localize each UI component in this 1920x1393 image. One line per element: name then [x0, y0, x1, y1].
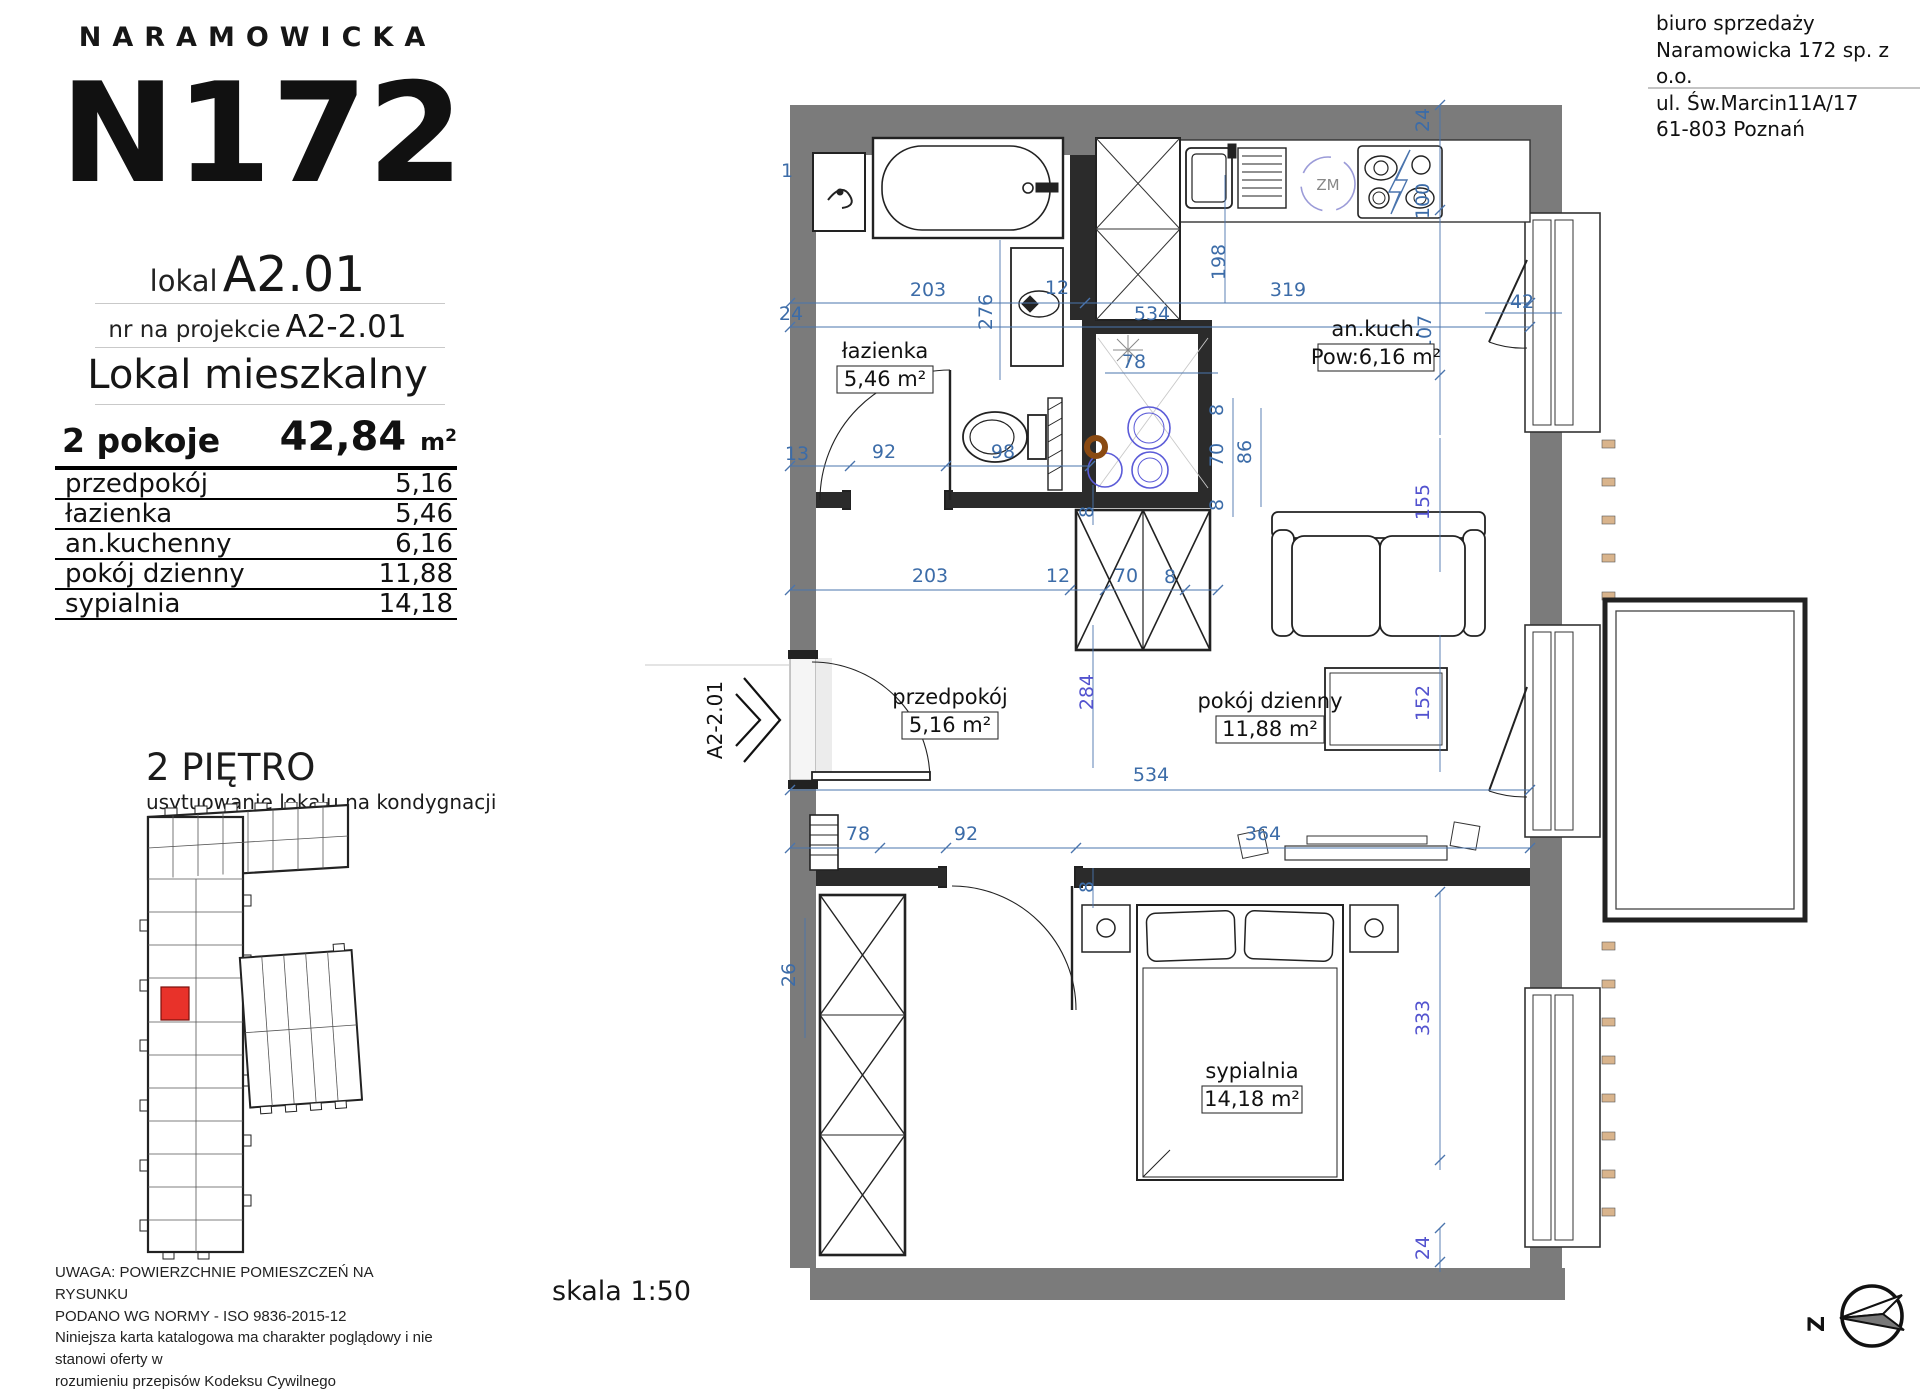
- floor-title: 2 PIĘTRO: [146, 746, 506, 789]
- dim-label: 364: [1245, 823, 1281, 845]
- divider: [95, 303, 445, 304]
- dim-label: 152: [1412, 685, 1434, 721]
- entrance-code: A2-2.01: [703, 681, 727, 759]
- dim-label: 98: [991, 441, 1015, 463]
- dishwasher-symbol: ZM: [1316, 176, 1339, 194]
- unit-value: A2.01: [223, 246, 366, 303]
- legal-line: PODANO WG NORMY - ISO 9836-2015-12: [55, 1306, 447, 1328]
- room-area: 11,88: [379, 559, 457, 589]
- brand-name: NARAMOWICKA: [60, 22, 455, 53]
- dim-label: 100: [1412, 183, 1434, 219]
- dim-label: 333: [1412, 1000, 1434, 1036]
- summary-row: 2 pokoje 42,84 m2: [62, 414, 457, 460]
- room-area: 5,46: [395, 499, 457, 529]
- project-number-line: nr na projekcie A2-2.01: [60, 309, 455, 345]
- hall-wardrobe: [1076, 510, 1210, 650]
- floor-plan: ZM: [640, 80, 1840, 1360]
- dim-label: 70: [1114, 565, 1138, 587]
- washbasin: [1011, 248, 1063, 366]
- room-name: sypialnia: [55, 589, 180, 619]
- room-label: sypialnia: [1205, 1059, 1298, 1083]
- dim-label: 12: [1045, 277, 1069, 299]
- divider: [95, 347, 445, 348]
- dim-label: 92: [872, 441, 896, 463]
- second-building: [239, 943, 362, 1114]
- shoe-cabinet: [810, 815, 838, 870]
- dim-label: 319: [1270, 279, 1306, 301]
- room-name: przedpokój: [55, 469, 208, 499]
- dim-label: 12: [1046, 565, 1070, 587]
- table-row: sypialnia14,18: [55, 590, 457, 620]
- table-row: przedpokój5,16: [55, 470, 457, 500]
- compass-west-label: Z: [1805, 1316, 1830, 1332]
- dim-label: 1: [781, 160, 793, 182]
- bathtub: [873, 138, 1063, 238]
- room-label: an.kuch.: [1331, 317, 1420, 341]
- rooms-count: 2 pokoje: [62, 421, 220, 460]
- room-area-label: Pow:6,16 m²: [1311, 345, 1441, 369]
- project-value: A2-2.01: [285, 309, 406, 345]
- compass: Z: [1780, 1264, 1920, 1358]
- balcony-door-leaf: [1489, 260, 1527, 797]
- dim-label: 534: [1134, 303, 1170, 325]
- room-area-table: przedpokój5,16 łazienka5,46 an.kuchenny6…: [55, 466, 457, 620]
- legal-note: UWAGA: POWIERZCHNIE POMIESZCZEŃ NA RYSUN…: [55, 1262, 447, 1393]
- dim-label: 8: [1206, 499, 1228, 511]
- dim-label: 13: [785, 443, 809, 465]
- room-label: przedpokój: [892, 685, 1008, 709]
- dim-label: 276: [975, 294, 997, 330]
- dim-label: 8: [1076, 506, 1098, 518]
- dim-label: 198: [1208, 244, 1230, 280]
- window-assemblies: [1525, 213, 1600, 1247]
- legal-line: Niniejsza karta katalogowa ma charakter …: [55, 1327, 447, 1371]
- dim-label: 24: [1412, 1236, 1434, 1260]
- room-area: 5,16: [395, 469, 457, 499]
- divider: [95, 404, 445, 405]
- legal-line: rozumieniu przepisów Kodeksu Cywilnego: [55, 1371, 447, 1393]
- kitchen-counter: [1096, 138, 1530, 320]
- dim-label: 534: [1133, 764, 1169, 786]
- unit-label: lokal: [150, 264, 218, 298]
- dim-label: 24: [779, 303, 803, 325]
- dim-label: 24: [1412, 108, 1434, 132]
- room-area: 14,18: [379, 589, 457, 619]
- dim-label: 155: [1412, 484, 1434, 520]
- room-area-label: 11,88 m²: [1222, 717, 1318, 741]
- dim-label: 86: [1234, 440, 1256, 464]
- washing-machine: [813, 153, 865, 231]
- dim-label: 284: [1076, 674, 1098, 710]
- dim-label: 8: [1076, 881, 1098, 893]
- project-logo: N172: [60, 58, 455, 210]
- room-label: pokój dzienny: [1197, 689, 1342, 713]
- dim-label: 8: [1164, 566, 1176, 588]
- room-area-label: 5,16 m²: [909, 713, 991, 737]
- dim-label: 78: [846, 823, 870, 845]
- dim-label: 8: [1206, 404, 1228, 416]
- entrance-threshold: [790, 658, 816, 780]
- dim-label: 203: [910, 279, 946, 301]
- entrance-marker: A2-2.01: [703, 678, 780, 762]
- sofa: [1272, 512, 1485, 636]
- scale-label: skala 1:50: [552, 1276, 691, 1307]
- room-name: pokój dzienny: [55, 559, 245, 589]
- dim-label: 26: [778, 963, 800, 987]
- room-name: an.kuchenny: [55, 529, 232, 559]
- room-area: 6,16: [395, 529, 457, 559]
- bedroom-door: [952, 886, 1076, 1010]
- dim-label: 70: [1206, 443, 1228, 467]
- unit-type: Lokal mieszkalny: [60, 352, 455, 398]
- office-line: biuro sprzedaży: [1656, 10, 1918, 37]
- room-name: łazienka: [55, 499, 172, 529]
- project-label: nr na projekcie: [108, 317, 280, 343]
- legal-line: UWAGA: POWIERZCHNIE POMIESZCZEŃ NA RYSUN…: [55, 1262, 447, 1306]
- room-area-label: 5,46 m²: [844, 367, 926, 391]
- entry-mat: [816, 658, 832, 780]
- dim-label: 203: [912, 565, 948, 587]
- dim-label: 78: [1122, 351, 1146, 373]
- building-location-map: [103, 802, 363, 1262]
- table-row: pokój dzienny11,88: [55, 560, 457, 590]
- entrance-arrow-icon: [736, 694, 760, 746]
- table-row: łazienka5,46: [55, 500, 457, 530]
- room-area-label: 14,18 m²: [1204, 1087, 1300, 1111]
- bedroom-wardrobe: [820, 895, 905, 1255]
- balcony: [1605, 600, 1805, 920]
- unit-number-line: lokal A2.01: [60, 246, 455, 303]
- dim-label: 92: [954, 823, 978, 845]
- total-area: 42,84 m2: [280, 414, 457, 460]
- room-label: łazienka: [842, 339, 929, 363]
- radiator: [1048, 398, 1062, 490]
- entrance-arrow-icon: [744, 678, 780, 762]
- table-row: an.kuchenny6,16: [55, 530, 457, 560]
- dim-label: 42: [1510, 291, 1534, 313]
- highlighted-unit-marker: [161, 987, 189, 1020]
- bed: [1137, 905, 1343, 1180]
